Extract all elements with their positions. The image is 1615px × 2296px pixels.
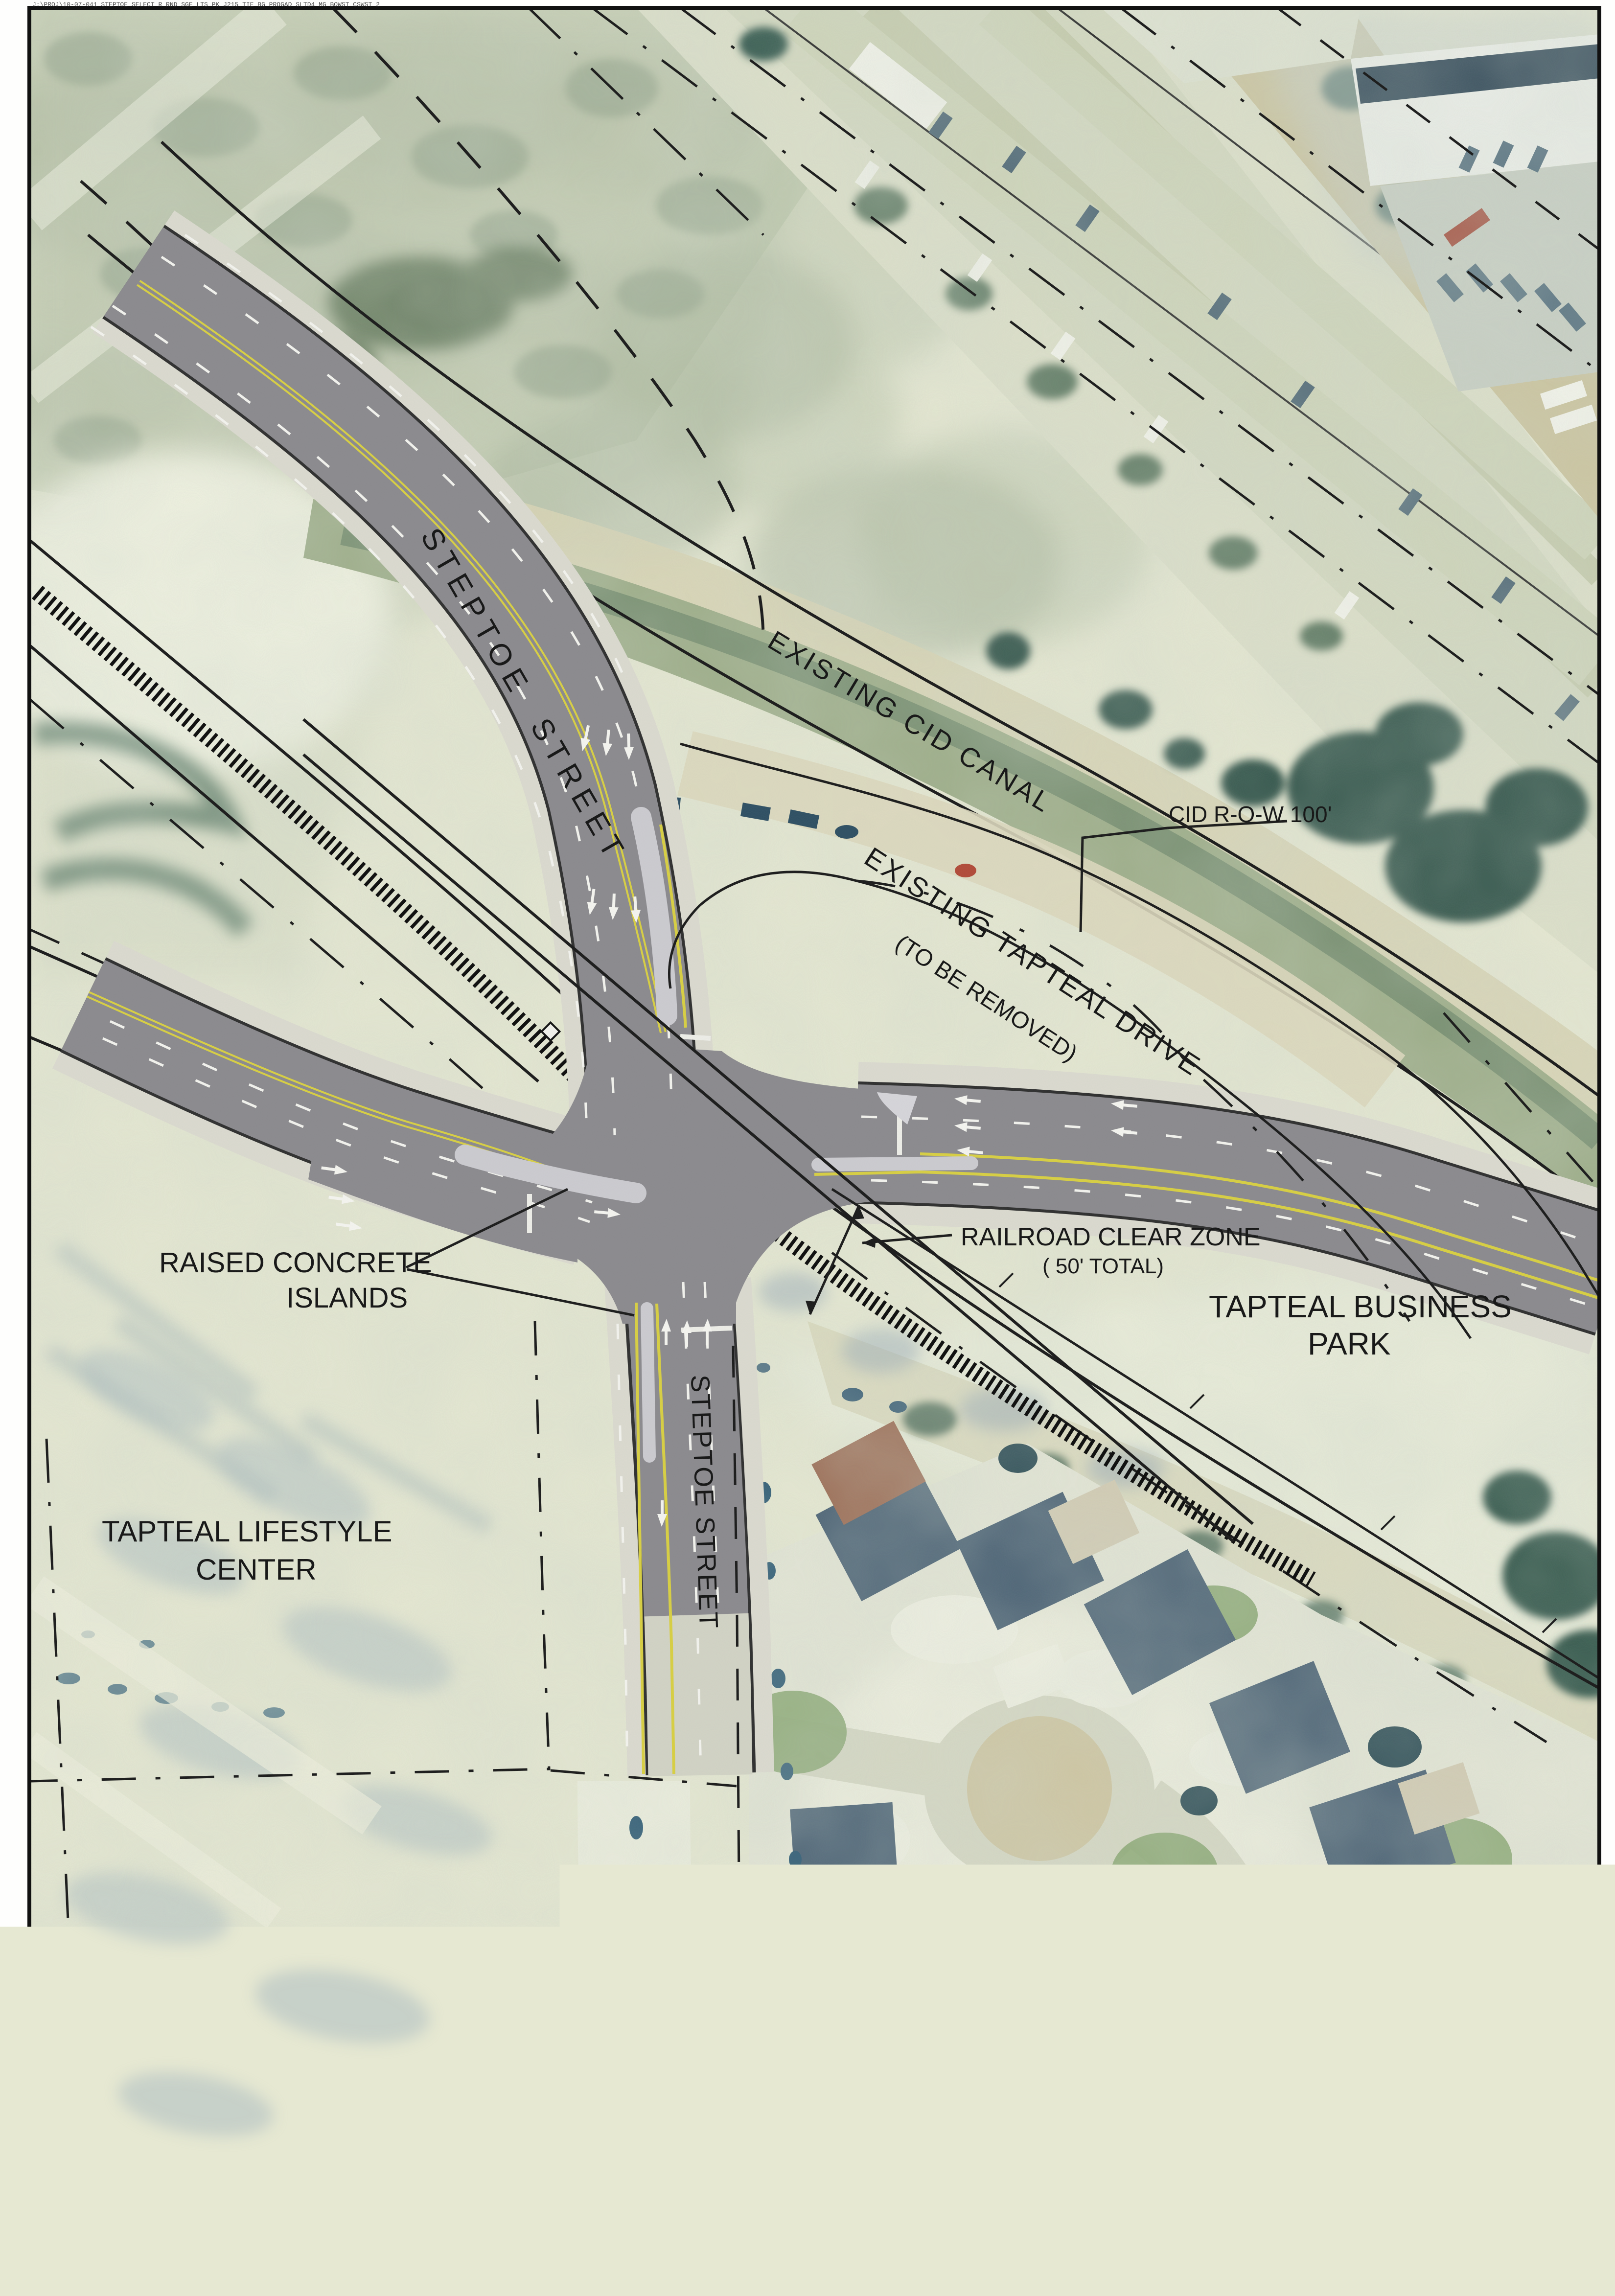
- svg-text:DRAWN BY: STT: DRAWN BY: STT: [34, 2265, 102, 2275]
- svg-text:J·U·B: J·U·B: [267, 2182, 389, 2239]
- svg-text:DATE PLOTTED: 8/13/2008: DATE PLOTTED: 8/13/2008: [34, 2281, 144, 2291]
- svg-text:J:\PROJ\10-07-041 STEPTOE SEL: J:\PROJ\10-07-041 STEPTOE SELECT R RND S…: [32, 1, 380, 8]
- svg-text:ALTERNATE 3: ALTERNATE 3: [947, 2165, 1099, 2190]
- svg-text:TAPTEAL/STEPTOE INTERSECTION: TAPTEAL/STEPTOE INTERSECTION: [830, 2192, 1217, 2218]
- svg-text:Engineers •Surveyors •Planners: Engineers •Surveyors •Planners: [232, 2269, 427, 2284]
- svg-text:CITY OF RICHLAND: CITY OF RICHLAND: [917, 2220, 1129, 2245]
